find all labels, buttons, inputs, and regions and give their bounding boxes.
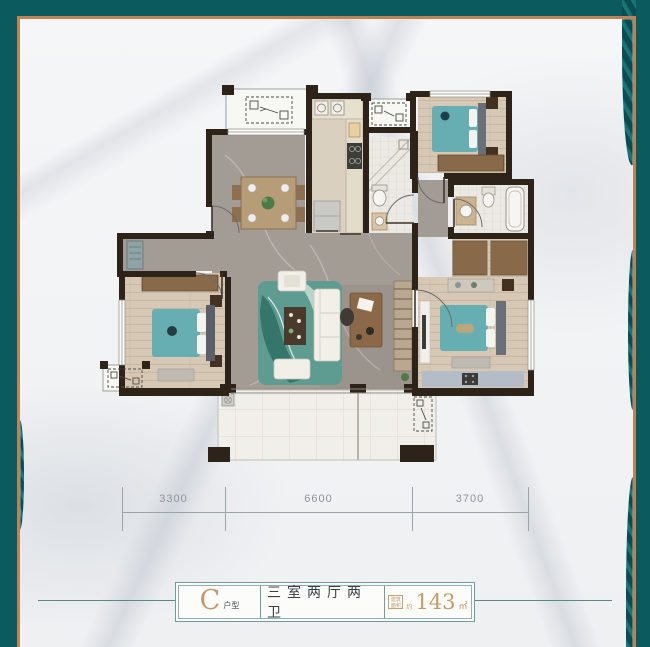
floor-plan-page: 3300 6600 3700 C 户型 三室两厅两卫 建筑面积 约 143 ㎡: [0, 0, 650, 647]
frame-left: [0, 0, 17, 647]
copper-frame: [17, 16, 636, 647]
frame-right: [636, 0, 650, 647]
frame-top: [0, 0, 650, 16]
